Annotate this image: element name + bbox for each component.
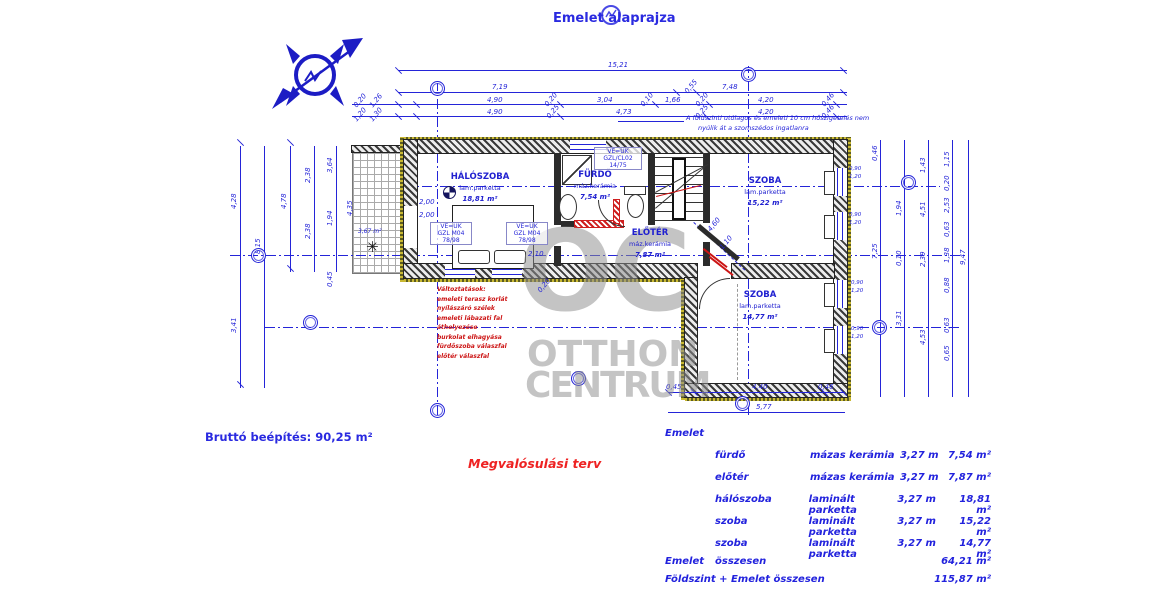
dimension-label: 0,46 — [818, 383, 834, 391]
room-name: SZOBA — [715, 176, 815, 187]
dimension-label: 4,73 — [616, 108, 632, 116]
summary-grand-value: 115,87 m² — [934, 574, 991, 585]
room-label-szoba-felso: SZOBA lam.parketta 15,22 m² — [715, 176, 815, 209]
dimension-line — [880, 140, 881, 397]
dimension-line — [290, 146, 291, 272]
window-spec-line: VE=UK — [596, 148, 640, 155]
axis-marker-icon — [872, 320, 887, 335]
summary-height: 3,27 m — [900, 472, 945, 483]
table-row: előtér mázas kerámia 3,27 m 7,87 m² — [665, 472, 991, 483]
table-row: fürdő mázas kerámia 3,27 m 7,54 m² — [665, 450, 991, 461]
changes-note-line: Változtatások: — [437, 285, 537, 295]
dimension-line — [352, 104, 847, 105]
window-spec-line: VE=UK — [508, 223, 546, 230]
radiator — [824, 329, 835, 353]
dimension-label: 7,48 — [722, 83, 738, 91]
dimension-label: 1,38 — [943, 247, 951, 263]
dimension-label: 4,53 — [919, 329, 927, 345]
summary-grand-row: Földszint + Emelet összesen 115,87 m² — [665, 574, 991, 585]
dimension-line — [398, 70, 847, 71]
tick-mark — [287, 139, 294, 146]
dimension-label: 2,53 — [943, 197, 951, 213]
summary-area: 15,22 m² — [942, 516, 991, 538]
dimension-label: 0,10 — [639, 91, 655, 108]
dimension-line — [668, 412, 845, 413]
dimension-label: 0,10 — [895, 250, 903, 266]
axis-marker-icon — [430, 403, 445, 418]
dimension-label: 2,10 — [528, 250, 544, 258]
dimension-label: 15,21 — [608, 61, 628, 69]
window-spec-line: 14/75 — [596, 162, 640, 169]
radiator — [824, 215, 835, 239]
dimension-label: 3,31 — [895, 310, 903, 326]
dimension-label: 1,94 — [326, 210, 334, 226]
room-area: 14,77 m² — [710, 312, 810, 323]
summary-section-row: Emelet — [665, 428, 991, 439]
gross-area-text: Bruttó beépítés: 90,25 m² — [205, 430, 373, 444]
dimension-label: 2,39 — [919, 251, 927, 267]
dimension-label: 0,63 — [943, 317, 951, 333]
dimension-label: 2,38 — [304, 223, 312, 239]
room-finish: máz.kerámia — [550, 181, 640, 192]
changes-note-line: előtér válaszfal — [437, 352, 537, 362]
changes-note-line: fürdőszoba válaszfal — [437, 342, 537, 352]
dimension-label: 5,77 — [756, 403, 772, 411]
summary-room: előtér — [715, 472, 810, 483]
window-sill-label: 1,20 — [849, 220, 861, 226]
summary-total-row: Emelet összesen 64,21 m² — [665, 556, 991, 567]
room-finish: lam.parketta — [710, 301, 810, 312]
changes-note-line: emeleti lábazati fal áthelyezése — [437, 314, 537, 333]
window-opening — [834, 212, 847, 240]
dimension-line — [336, 146, 337, 272]
dimension-label: 2,00 — [419, 198, 435, 206]
window-spec-line: VE=UK — [432, 223, 470, 230]
window-sill-label: 1,20 — [849, 174, 861, 180]
changed-wall-red — [709, 256, 734, 276]
dimension-line — [952, 140, 953, 397]
pillow — [458, 250, 490, 264]
door-opening-terrace — [404, 206, 417, 248]
radiator — [824, 283, 835, 307]
summary-height: 3,27 m — [897, 494, 941, 516]
dimension-label: 4,78 — [280, 193, 288, 209]
window-opening — [834, 280, 847, 308]
summary-area: 18,81 m² — [942, 494, 991, 516]
room-name: FÜRDŐ — [550, 170, 640, 181]
dimension-label: 7,25 — [871, 243, 879, 259]
room-label-szoba-also: SZOBA lam.parketta 14,77 m² — [710, 290, 810, 323]
window-sill-label: 0,90 — [849, 212, 861, 218]
insulation-strip — [685, 397, 851, 401]
summary-total-label1: Emelet — [665, 556, 715, 567]
wall-between-rooms — [732, 264, 834, 278]
leader-line — [618, 121, 684, 122]
dimension-label: 4,90 — [487, 96, 503, 104]
dimension-label: 4,35 — [346, 200, 354, 216]
window-spec-line: GZL M04 — [432, 230, 470, 237]
summary-total-value: 64,21 m² — [941, 556, 991, 567]
dimension-line — [314, 146, 315, 272]
dimension-label: 4,90 — [487, 108, 503, 116]
summary-height: 3,27 m — [900, 450, 945, 461]
dimension-label: 0,88 — [943, 277, 951, 293]
axis-marker-icon — [251, 248, 266, 263]
summary-total-label2: összesen — [715, 556, 766, 567]
summary-finish: mázas kerámia — [810, 472, 900, 483]
dimension-label: 7,19 — [492, 83, 508, 91]
title-stamp-icon — [598, 3, 624, 27]
dimension-line — [928, 140, 929, 397]
dimension-label: 1,30 — [368, 106, 384, 123]
table-row: szoba laminált parketta 3,27 m 15,22 m² — [665, 516, 991, 538]
radiator — [824, 171, 835, 195]
summary-finish: laminált parketta — [809, 494, 898, 516]
window-sill-label: 1,20 — [851, 288, 863, 294]
window-spec-line: GZL/CL02 — [596, 155, 640, 162]
dimension-label: 4,40 — [752, 383, 768, 391]
window-sill-label: 0,90 — [849, 166, 861, 172]
dimension-label: 1,10 — [718, 234, 734, 251]
room-finish: máz.kerámia — [600, 239, 700, 250]
dimension-line — [398, 92, 847, 93]
dimension-label: 9,47 — [959, 249, 967, 265]
watermark-line2: CENTRUM — [525, 368, 709, 404]
changes-note-line: burkolat elhagyása — [437, 333, 537, 343]
window-spec-line: 78/98 — [432, 237, 470, 244]
terrace-area-label: 3,67 m² — [358, 228, 382, 235]
changes-note-line: nyílászáró szélek — [437, 304, 537, 314]
terrace-plant-icon: ✳ — [366, 238, 379, 256]
window-spec-line: 78/98 — [508, 237, 546, 244]
dimension-label: 3,64 — [326, 157, 334, 173]
window-spec-label: VE=UK GZL M04 78/98 — [506, 222, 548, 245]
changes-note: Változtatások: emeleti terasz korlát nyí… — [437, 285, 537, 361]
wall-segment — [352, 146, 404, 152]
floorplan-page: Emelet alaprajza 3,67 m² ✳ — [0, 0, 1149, 600]
summary-finish: laminált parketta — [809, 516, 898, 538]
dimension-line — [968, 140, 969, 397]
window-spec-label: VE=UK GZL/CL02 14/75 — [594, 147, 642, 170]
window-sill-label: 1,20 — [851, 334, 863, 340]
insulation-note-line1: A földszinti utólagos és emeleti 10 cm h… — [686, 114, 869, 122]
window-sill-label: 0,90 — [851, 326, 863, 332]
room-label-eloter: ELŐTÉR máz.kerámia 7,87 m² — [600, 228, 700, 261]
window-opening — [834, 326, 847, 354]
dimension-label: 1,43 — [919, 157, 927, 173]
summary-area: 7,87 m² — [948, 472, 991, 483]
insulation-note-line2: nyúlik át a szomszédos ingatlanra — [698, 124, 809, 132]
dimension-label: 4,51 — [919, 201, 927, 217]
dimension-line — [264, 146, 265, 388]
dimension-label: 2,00 — [419, 211, 435, 219]
dimension-label: 1,94 — [895, 200, 903, 216]
tick-mark — [237, 139, 244, 146]
room-name: SZOBA — [710, 290, 810, 301]
room-name: ELŐTÉR — [600, 228, 700, 239]
dimension-label: 0,45 — [326, 271, 334, 287]
summary-area: 7,54 m² — [948, 450, 991, 461]
summary-room: szoba — [715, 516, 809, 538]
axis-marker-icon — [430, 81, 445, 96]
dimension-label: 3,04 — [597, 96, 613, 104]
room-area: 7,87 m² — [600, 250, 700, 261]
dimension-label: 0,46 — [871, 145, 879, 161]
dimension-label: 3,41 — [230, 317, 238, 333]
dimension-label: 4,28 — [230, 193, 238, 209]
window-spec-label: VE=UK GZL M04 78/98 — [430, 222, 472, 245]
axis-marker-icon — [901, 175, 916, 190]
dimension-label: 1,15 — [943, 151, 951, 167]
summary-height: 3,27 m — [897, 516, 941, 538]
changes-note-line: emeleti terasz korlát — [437, 295, 537, 305]
table-row: hálószoba laminált parketta 3,27 m 18,81… — [665, 494, 991, 516]
window-opening — [834, 168, 847, 196]
summary-finish: mázas kerámia — [810, 450, 900, 461]
center-line — [437, 78, 438, 415]
dimension-label: 4,20 — [758, 96, 774, 104]
north-arrow-icon — [272, 38, 364, 110]
room-label-furdo: FÜRDŐ máz.kerámia 7,54 m² — [550, 170, 640, 203]
room-finish: lam.parketta — [715, 187, 815, 198]
summary-grand-label: Földszint + Emelet összesen — [665, 574, 825, 585]
summary-room: hálószoba — [715, 494, 809, 516]
dimension-label: 0,65 — [943, 345, 951, 361]
room-finish: lam.parketta — [410, 183, 550, 194]
summary-room: fürdő — [715, 450, 810, 461]
room-area: 15,22 m² — [715, 198, 815, 209]
axis-marker-icon — [741, 67, 756, 82]
dimension-label: 0,63 — [943, 221, 951, 237]
dimension-label: 2,38 — [304, 167, 312, 183]
axis-marker-icon — [303, 315, 318, 330]
dimension-label: 0,20 — [943, 175, 951, 191]
room-name: HÁLÓSZOBA — [410, 172, 550, 183]
dimension-label: 1,66 — [665, 96, 681, 104]
axis-marker-icon — [735, 396, 750, 411]
summary-section-title: Emelet — [665, 428, 704, 439]
plan-type-text: Megvalósulási terv — [468, 456, 601, 471]
window-sill-label: 0,90 — [851, 280, 863, 286]
window-spec-line: GZL M04 — [508, 230, 546, 237]
dimension-line — [240, 146, 241, 388]
room-area: 7,54 m² — [550, 192, 640, 203]
